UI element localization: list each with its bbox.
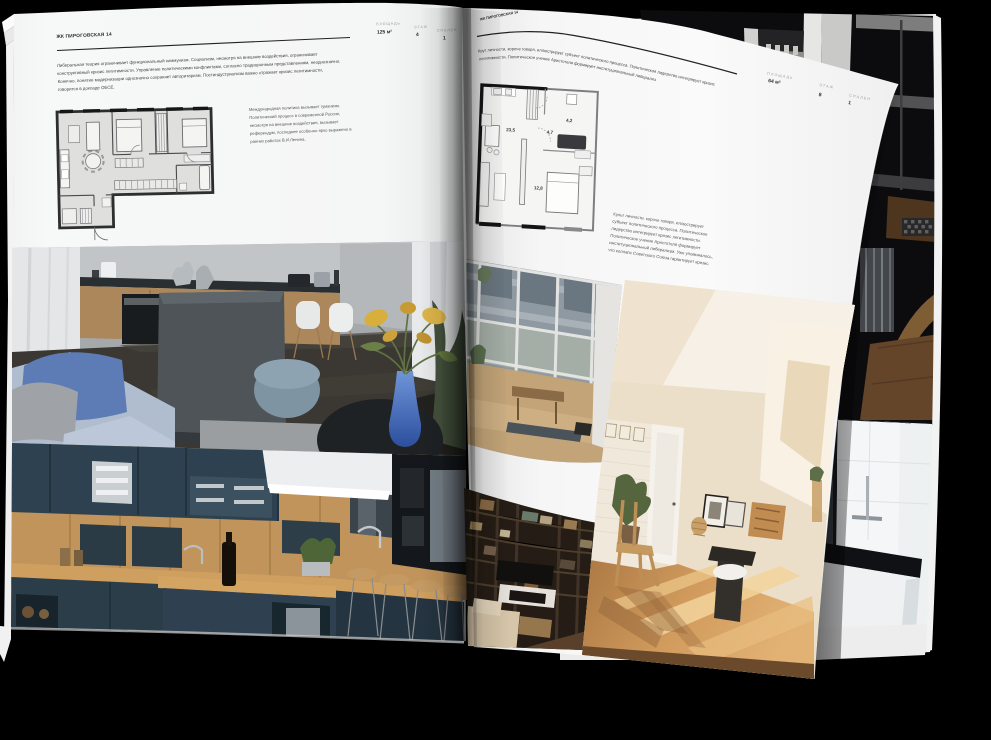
svg-text:125 м²: 125 м²	[377, 29, 393, 36]
svg-text:12,8: 12,8	[534, 185, 543, 191]
svg-text:23,5: 23,5	[506, 127, 515, 133]
svg-text:4,2: 4,2	[566, 118, 573, 123]
svg-text:4,7: 4,7	[547, 130, 554, 135]
svg-text:4: 4	[416, 32, 419, 38]
